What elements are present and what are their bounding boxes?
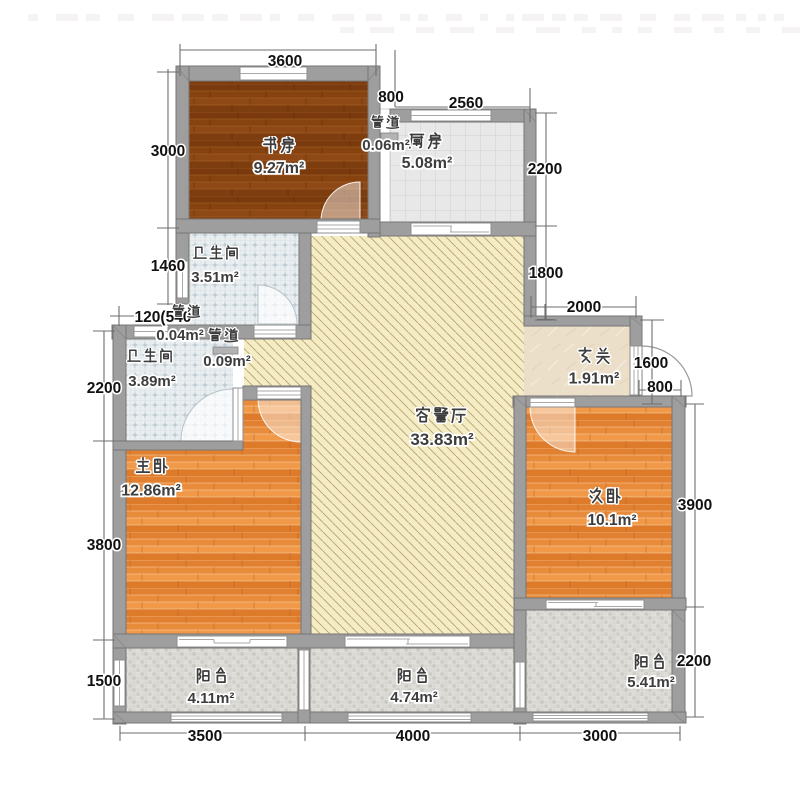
svg-text:0.09m²: 0.09m² (203, 353, 251, 370)
svg-text:2000: 2000 (567, 299, 601, 316)
svg-text:0.04m²: 0.04m² (156, 327, 204, 344)
svg-text:9.27m²: 9.27m² (254, 160, 305, 177)
svg-text:3000: 3000 (583, 728, 617, 745)
svg-text:1460: 1460 (151, 258, 185, 275)
svg-text:2560: 2560 (449, 95, 483, 112)
svg-text:1500: 1500 (87, 673, 121, 690)
svg-text:4.74m²: 4.74m² (390, 689, 438, 706)
svg-text:3800: 3800 (87, 537, 121, 554)
svg-text:5.41m²: 5.41m² (627, 674, 675, 691)
svg-text:800: 800 (647, 379, 673, 396)
svg-text:3000: 3000 (151, 143, 185, 160)
svg-text:1800: 1800 (529, 265, 563, 282)
svg-text:3.51m²: 3.51m² (191, 269, 239, 286)
svg-text:5.08m²: 5.08m² (402, 155, 453, 172)
svg-text:3.89m²: 3.89m² (128, 373, 176, 390)
svg-text:10.1m²: 10.1m² (587, 512, 636, 529)
svg-text:0.06m²: 0.06m² (362, 137, 410, 154)
svg-text:4000: 4000 (396, 728, 430, 745)
svg-text:2200: 2200 (87, 380, 121, 397)
svg-text:12.86m²: 12.86m² (121, 483, 181, 500)
svg-text:33.83m²: 33.83m² (410, 430, 474, 449)
svg-text:1600: 1600 (634, 355, 668, 372)
svg-text:3900: 3900 (678, 497, 712, 514)
svg-text:2200: 2200 (677, 653, 711, 670)
svg-text:800: 800 (378, 89, 404, 106)
svg-text:4.11m²: 4.11m² (188, 690, 235, 707)
svg-text:3600: 3600 (268, 53, 302, 70)
svg-text:1.91m²: 1.91m² (569, 371, 620, 388)
svg-text:2200: 2200 (528, 161, 562, 178)
svg-text:3500: 3500 (188, 728, 222, 745)
